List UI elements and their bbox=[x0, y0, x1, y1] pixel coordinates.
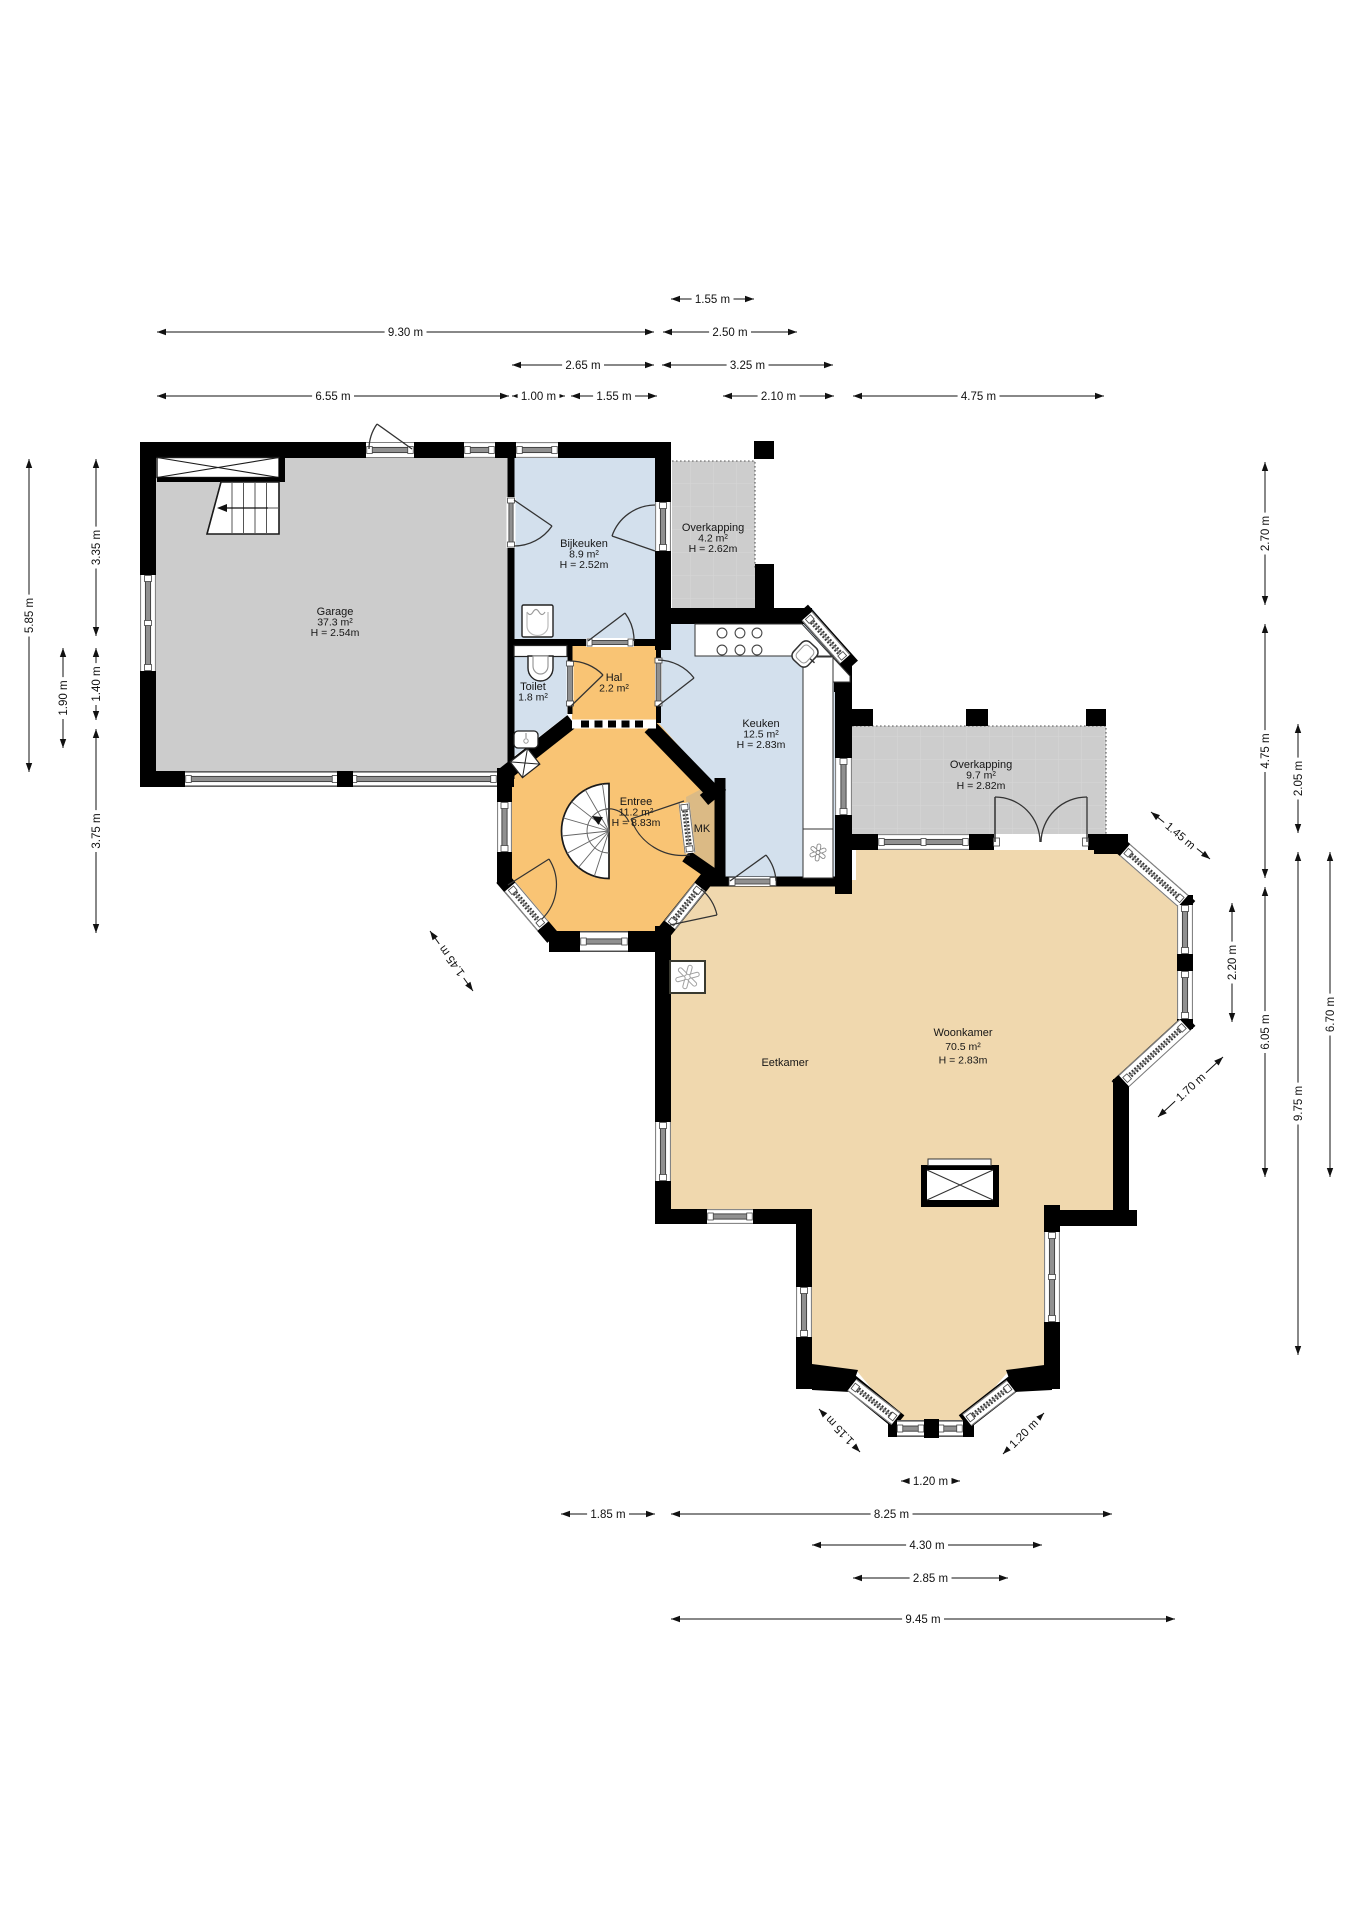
svg-text:2.50 m: 2.50 m bbox=[712, 327, 747, 339]
svg-text:9.75 m: 9.75 m bbox=[1293, 1086, 1305, 1121]
svg-text:3.25 m: 3.25 m bbox=[730, 360, 765, 372]
svg-text:2.05 m: 2.05 m bbox=[1293, 761, 1305, 796]
svg-text:1.40 m: 1.40 m bbox=[91, 666, 103, 701]
svg-text:H = 2.54m: H = 2.54m bbox=[311, 627, 360, 639]
svg-text:2.65 m: 2.65 m bbox=[565, 360, 600, 372]
svg-text:1.20 m: 1.20 m bbox=[913, 1476, 948, 1488]
svg-text:H = 2.82m: H = 2.82m bbox=[957, 780, 1006, 792]
svg-text:1.00 m: 1.00 m bbox=[521, 391, 556, 403]
svg-text:1.8 m²: 1.8 m² bbox=[518, 692, 548, 704]
svg-text:4.75 m: 4.75 m bbox=[1260, 733, 1272, 768]
svg-text:5.85 m: 5.85 m bbox=[24, 598, 36, 633]
svg-text:2.70 m: 2.70 m bbox=[1260, 516, 1272, 551]
svg-text:1.55 m: 1.55 m bbox=[596, 391, 631, 403]
svg-text:2.2 m²: 2.2 m² bbox=[599, 683, 629, 695]
svg-text:8.25 m: 8.25 m bbox=[874, 1509, 909, 1521]
svg-text:2.85 m: 2.85 m bbox=[913, 1573, 948, 1585]
svg-text:2.20 m: 2.20 m bbox=[1227, 945, 1239, 980]
svg-text:H = 2.83m: H = 2.83m bbox=[939, 1055, 988, 1067]
svg-text:6.55 m: 6.55 m bbox=[315, 391, 350, 403]
svg-text:MK: MK bbox=[694, 823, 711, 835]
svg-text:6.70 m: 6.70 m bbox=[1325, 997, 1337, 1032]
svg-text:H = 8.83m: H = 8.83m bbox=[612, 817, 661, 829]
svg-text:Woonkamer: Woonkamer bbox=[933, 1027, 992, 1039]
svg-text:H = 2.52m: H = 2.52m bbox=[560, 559, 609, 571]
svg-text:1.55 m: 1.55 m bbox=[695, 294, 730, 306]
svg-text:4.30 m: 4.30 m bbox=[909, 1540, 944, 1552]
svg-text:H = 2.83m: H = 2.83m bbox=[737, 739, 786, 751]
svg-text:1.90 m: 1.90 m bbox=[58, 680, 70, 715]
svg-text:70.5 m²: 70.5 m² bbox=[945, 1041, 981, 1053]
svg-text:6.05 m: 6.05 m bbox=[1260, 1014, 1272, 1049]
svg-text:3.35 m: 3.35 m bbox=[91, 530, 103, 565]
svg-text:4.75 m: 4.75 m bbox=[961, 391, 996, 403]
svg-text:2.10 m: 2.10 m bbox=[761, 391, 796, 403]
svg-text:3.75 m: 3.75 m bbox=[91, 813, 103, 848]
svg-text:Eetkamer: Eetkamer bbox=[761, 1057, 808, 1069]
svg-text:H = 2.62m: H = 2.62m bbox=[689, 543, 738, 555]
svg-text:1.85 m: 1.85 m bbox=[590, 1509, 625, 1521]
svg-text:9.45 m: 9.45 m bbox=[905, 1614, 940, 1626]
svg-text:9.30 m: 9.30 m bbox=[388, 327, 423, 339]
